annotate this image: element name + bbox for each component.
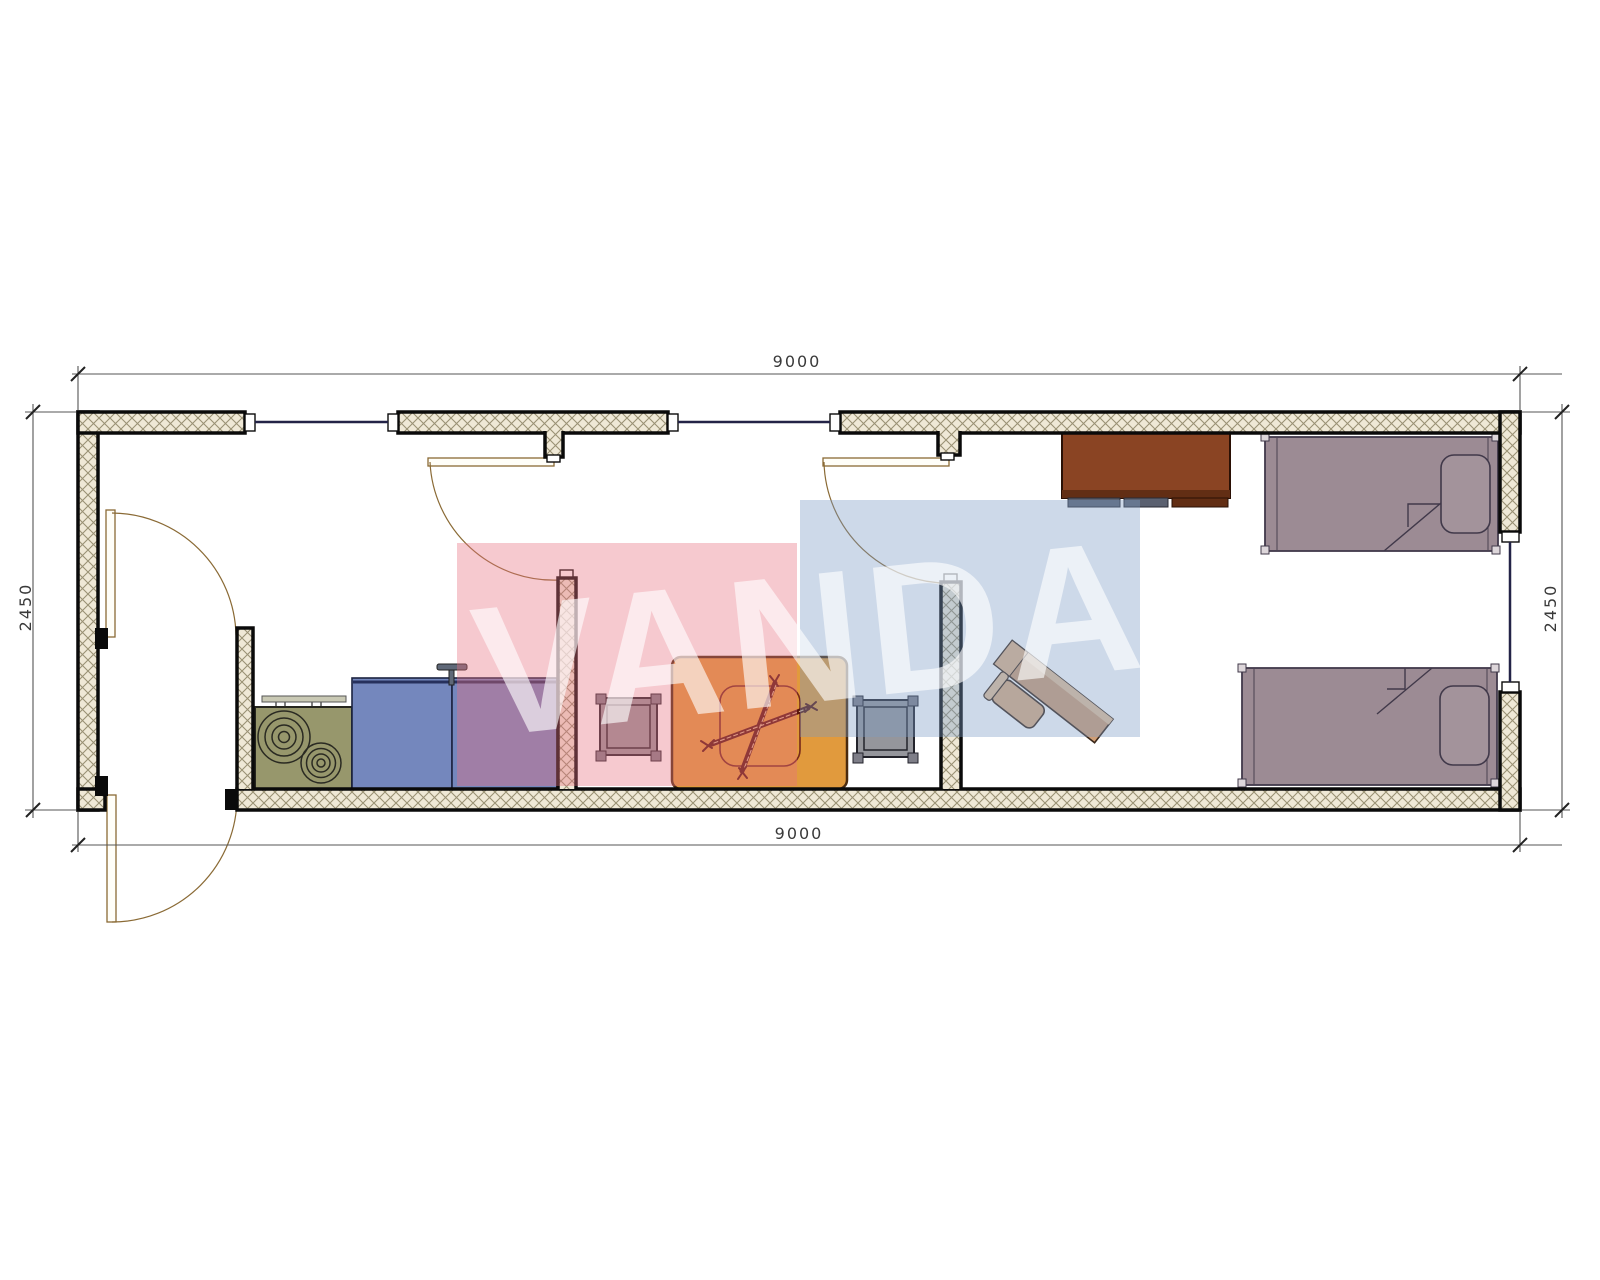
entry-exterior-door [107, 795, 237, 922]
door-stub-1 [545, 431, 563, 457]
dim-text-top: 9000 [773, 352, 822, 371]
wardrobe [1062, 433, 1230, 507]
door-stub-2 [938, 431, 960, 455]
dim-text-left: 2450 [16, 583, 35, 632]
dim-text-bottom: 9000 [775, 824, 824, 843]
wall-right-top [1500, 412, 1520, 532]
wall-left [78, 412, 98, 810]
wall-top-2 [398, 412, 668, 433]
floor-plan-drawing: VANDA 9000 9000 2450 2450 [0, 0, 1600, 1280]
dim-text-right: 2450 [1541, 584, 1560, 633]
floor-plan-page: VANDA 9000 9000 2450 2450 [0, 0, 1600, 1280]
pillow [1440, 686, 1489, 765]
wall-top-1 [78, 412, 245, 433]
wall-right-bottom [1500, 692, 1520, 810]
vestibule-door [106, 510, 236, 637]
wall-top-3 [840, 412, 1520, 433]
bed-bottom [1238, 664, 1499, 787]
stove [255, 707, 352, 790]
bed-top [1261, 433, 1500, 554]
kitchen-cabinet [352, 678, 452, 790]
wall-bottom [237, 789, 1520, 810]
door-jambs [95, 628, 238, 810]
partition-vestibule [237, 628, 253, 790]
pillow [1441, 455, 1490, 533]
